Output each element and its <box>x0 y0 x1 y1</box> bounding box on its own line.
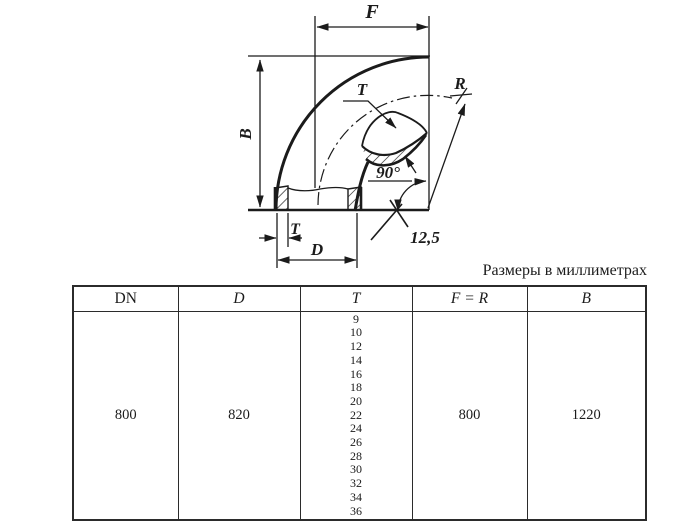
dimension-F: F <box>317 1 428 27</box>
page: F B R T 90° 12,5 <box>0 0 700 525</box>
data-row: 800 820 91012141618202224262830323436 80… <box>73 312 646 521</box>
cell-f-r: 800 <box>412 312 527 521</box>
dimension-B: B <box>236 60 260 207</box>
cell-d: 820 <box>178 312 300 521</box>
b-label: B <box>236 128 255 140</box>
header-b: B <box>527 286 646 312</box>
elbow-body <box>275 57 429 211</box>
elbow-technical-drawing: F B R T 90° 12,5 <box>0 0 700 288</box>
t-top-leader <box>343 101 396 128</box>
t-values-list: 91012141618202224262830323436 <box>301 313 412 519</box>
r-dimension-line <box>428 104 465 208</box>
roughness-mark: 12,5 <box>371 200 440 247</box>
dimension-R: R <box>428 74 472 208</box>
right-wall-section <box>348 187 361 210</box>
angle-face-leader <box>405 156 416 173</box>
header-f-r: F = R <box>412 286 527 312</box>
t-bottom-label: T <box>290 221 301 238</box>
left-wall-section <box>275 186 288 210</box>
centerline-arc <box>318 95 452 205</box>
r-label: R <box>453 74 465 93</box>
dimension-angle: 90° <box>368 156 426 211</box>
roughness-label: 12,5 <box>410 228 440 247</box>
d-label: D <box>310 240 323 259</box>
outer-arc <box>276 57 429 210</box>
dimension-T-top: T <box>343 80 396 128</box>
header-t: T <box>300 286 412 312</box>
cell-b: 1220 <box>527 312 646 521</box>
angle-label: 90° <box>376 163 400 182</box>
upper-wall-section-hatch <box>362 133 427 165</box>
table-caption: Размеры в миллиметрах <box>395 262 647 280</box>
header-dn: DN <box>73 286 178 312</box>
dimensions-table: DN D T F = R B 800 820 91012141618202224… <box>72 285 647 521</box>
cell-t-values: 91012141618202224262830323436 <box>300 312 412 521</box>
bore-inner-line <box>288 188 348 191</box>
header-d: D <box>178 286 300 312</box>
header-row: DN D T F = R B <box>73 286 646 312</box>
t-top-label: T <box>357 80 368 99</box>
f-label: F <box>364 1 379 23</box>
angle-arc <box>398 181 426 211</box>
cell-dn: 800 <box>73 312 178 521</box>
